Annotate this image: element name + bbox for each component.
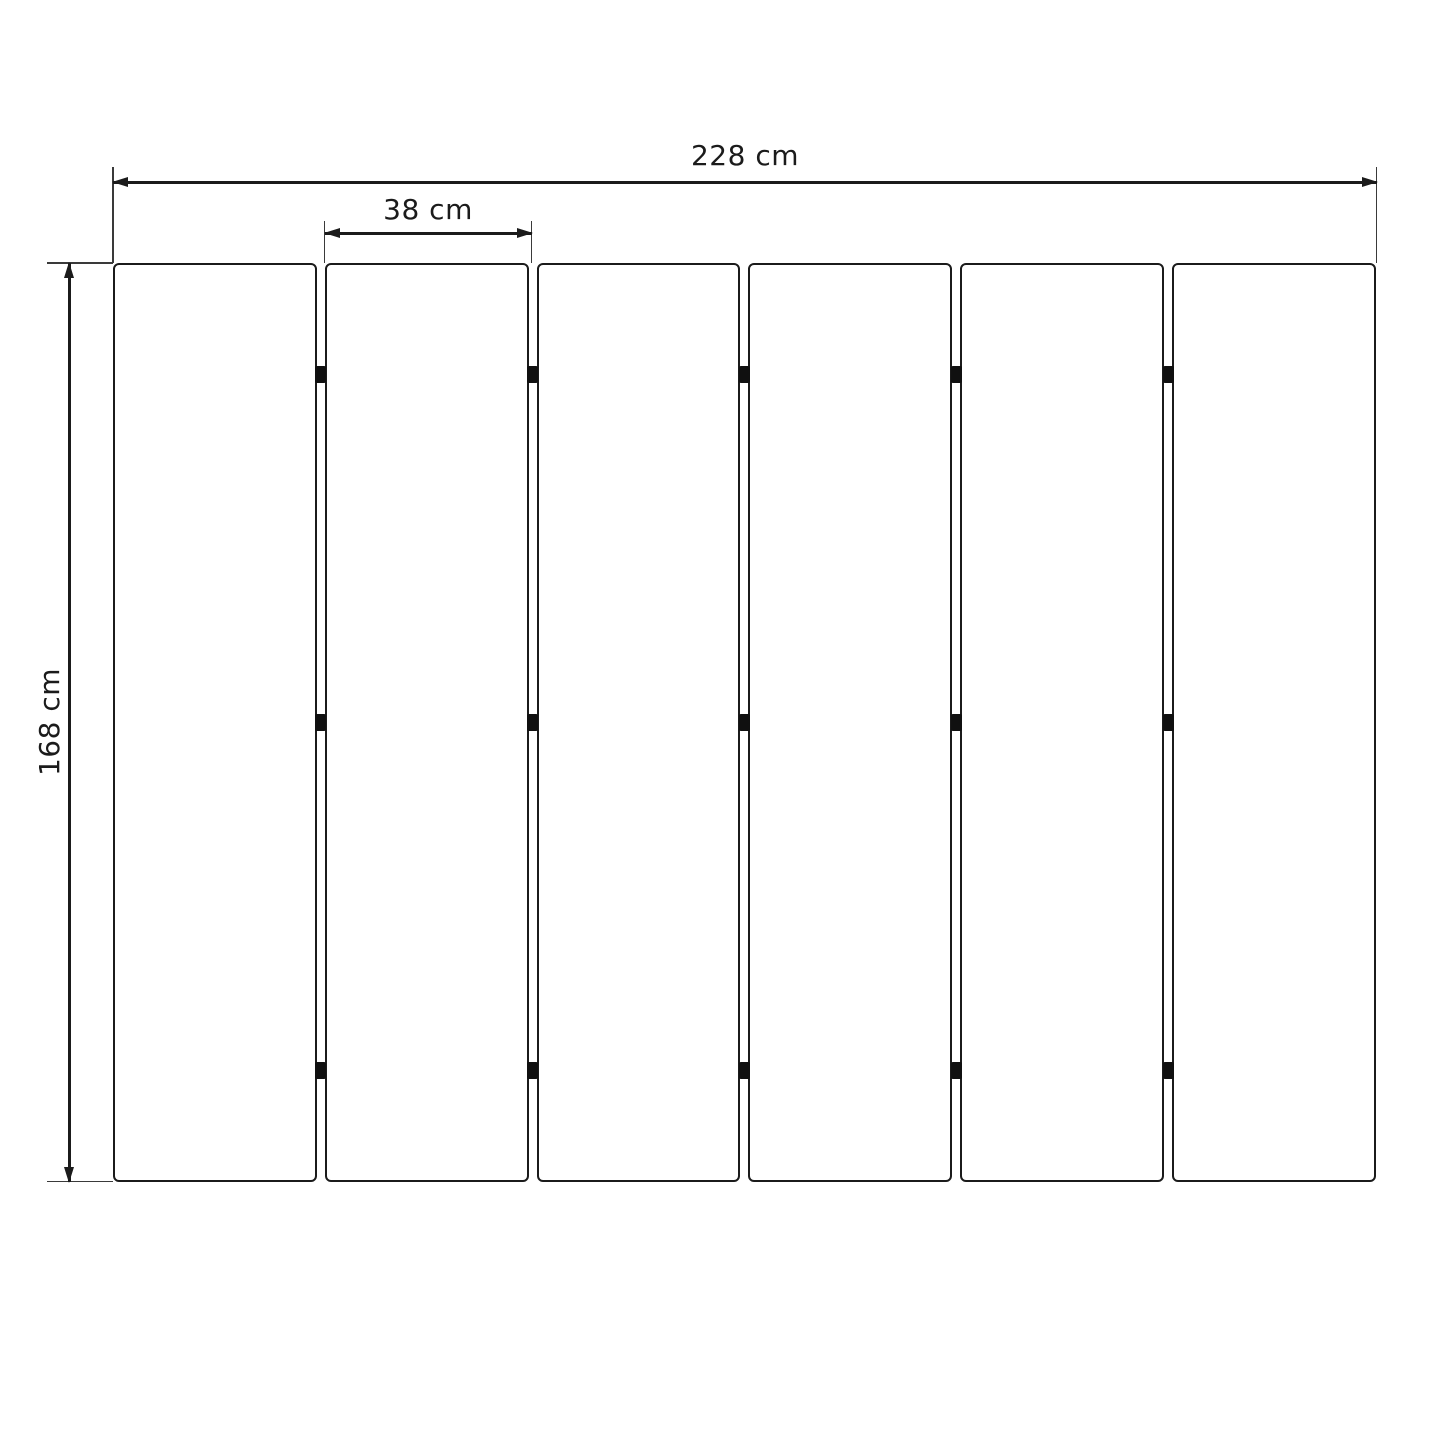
extension-line-height-bottom xyxy=(47,1181,113,1183)
panel xyxy=(537,263,741,1182)
panel-connector xyxy=(739,366,750,383)
panel-connector xyxy=(739,1062,750,1079)
arrow-up-icon xyxy=(64,262,74,278)
total-width-dimension-line xyxy=(113,181,1377,184)
panel-connector xyxy=(527,366,538,383)
panel-connector xyxy=(315,1062,326,1079)
arrow-right-icon xyxy=(1362,177,1378,187)
panel-connector xyxy=(951,1062,962,1079)
height-dimension-line xyxy=(68,263,71,1182)
panel-connector xyxy=(315,714,326,731)
panel-connector xyxy=(1163,1062,1174,1079)
panel-connector xyxy=(739,714,750,731)
height-label: 168 cm xyxy=(34,668,66,776)
total-width-label: 228 cm xyxy=(691,140,799,172)
technical-drawing-canvas: 228 cm 38 cm 168 cm xyxy=(0,0,1445,1445)
panel-width-label: 38 cm xyxy=(383,194,473,226)
arrow-down-icon xyxy=(64,1167,74,1183)
panel xyxy=(960,263,1164,1182)
panel xyxy=(113,263,317,1182)
panel-connector xyxy=(527,1062,538,1079)
panel-connector xyxy=(1163,366,1174,383)
panel-width-dimension-line xyxy=(325,232,532,235)
panel-connector xyxy=(951,366,962,383)
panel-assembly xyxy=(113,263,1376,1182)
panel-connector xyxy=(951,714,962,731)
arrow-right-icon xyxy=(517,228,533,238)
panel xyxy=(325,263,529,1182)
arrow-left-icon xyxy=(324,228,340,238)
panel-connector xyxy=(527,714,538,731)
panel-connector xyxy=(1163,714,1174,731)
panel-connector xyxy=(315,366,326,383)
panel xyxy=(1172,263,1376,1182)
arrow-left-icon xyxy=(112,177,128,187)
panel xyxy=(748,263,952,1182)
extension-line-height-top xyxy=(47,262,113,264)
